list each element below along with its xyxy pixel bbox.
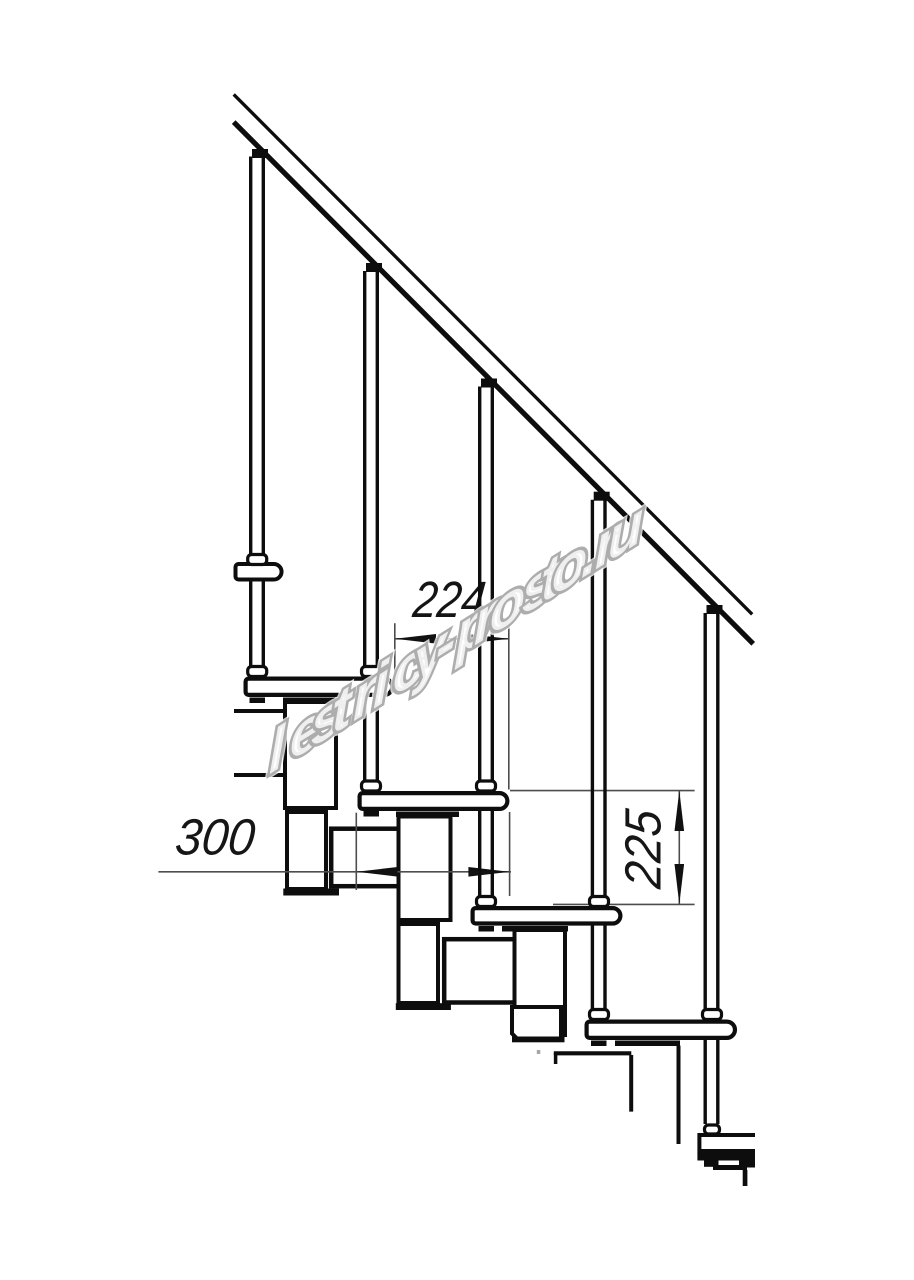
svg-text:300: 300 xyxy=(173,808,258,865)
svg-text:225: 225 xyxy=(615,806,672,891)
svg-text:lestnicy-prosto.ru: lestnicy-prosto.ru xyxy=(269,488,643,787)
